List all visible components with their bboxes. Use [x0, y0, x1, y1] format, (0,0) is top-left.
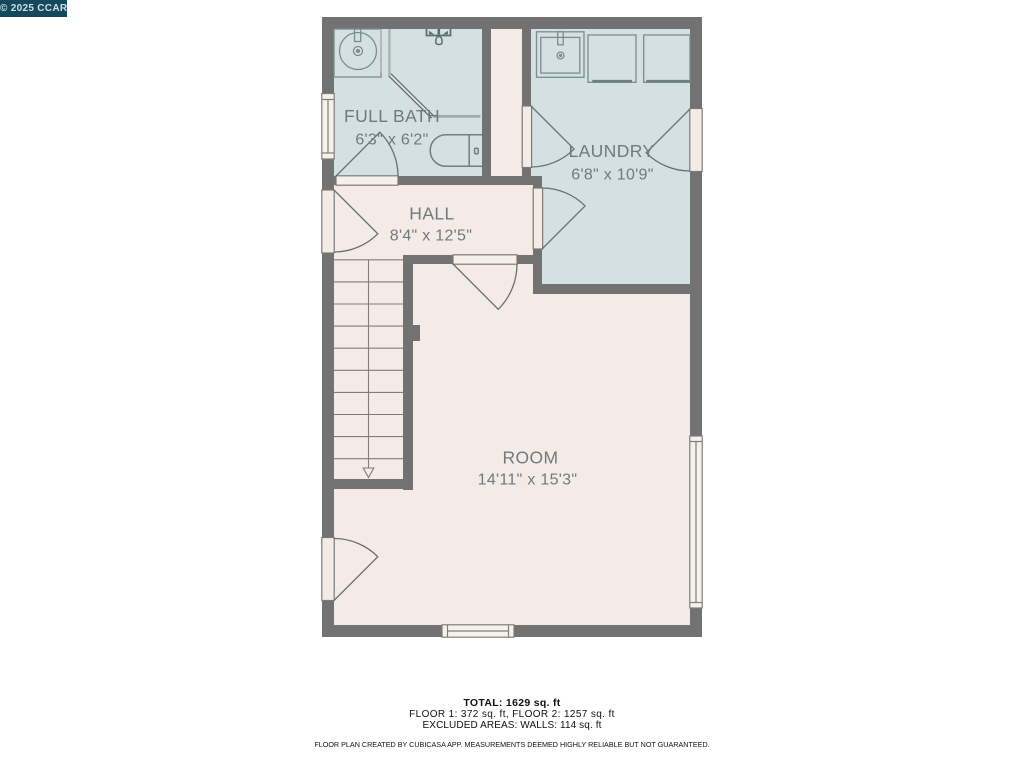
svg-text:8'4" x 12'5": 8'4" x 12'5"	[390, 228, 472, 245]
svg-text:LAUNDRY: LAUNDRY	[568, 141, 654, 161]
svg-text:HALL: HALL	[409, 204, 454, 224]
svg-text:FULL BATH: FULL BATH	[344, 106, 440, 126]
svg-text:6'3" x 6'2": 6'3" x 6'2"	[355, 132, 428, 149]
svg-text:ROOM: ROOM	[502, 448, 558, 468]
svg-text:14'11" x 15'3": 14'11" x 15'3"	[478, 472, 578, 489]
svg-text:6'8" x 10'9": 6'8" x 10'9"	[571, 167, 653, 184]
